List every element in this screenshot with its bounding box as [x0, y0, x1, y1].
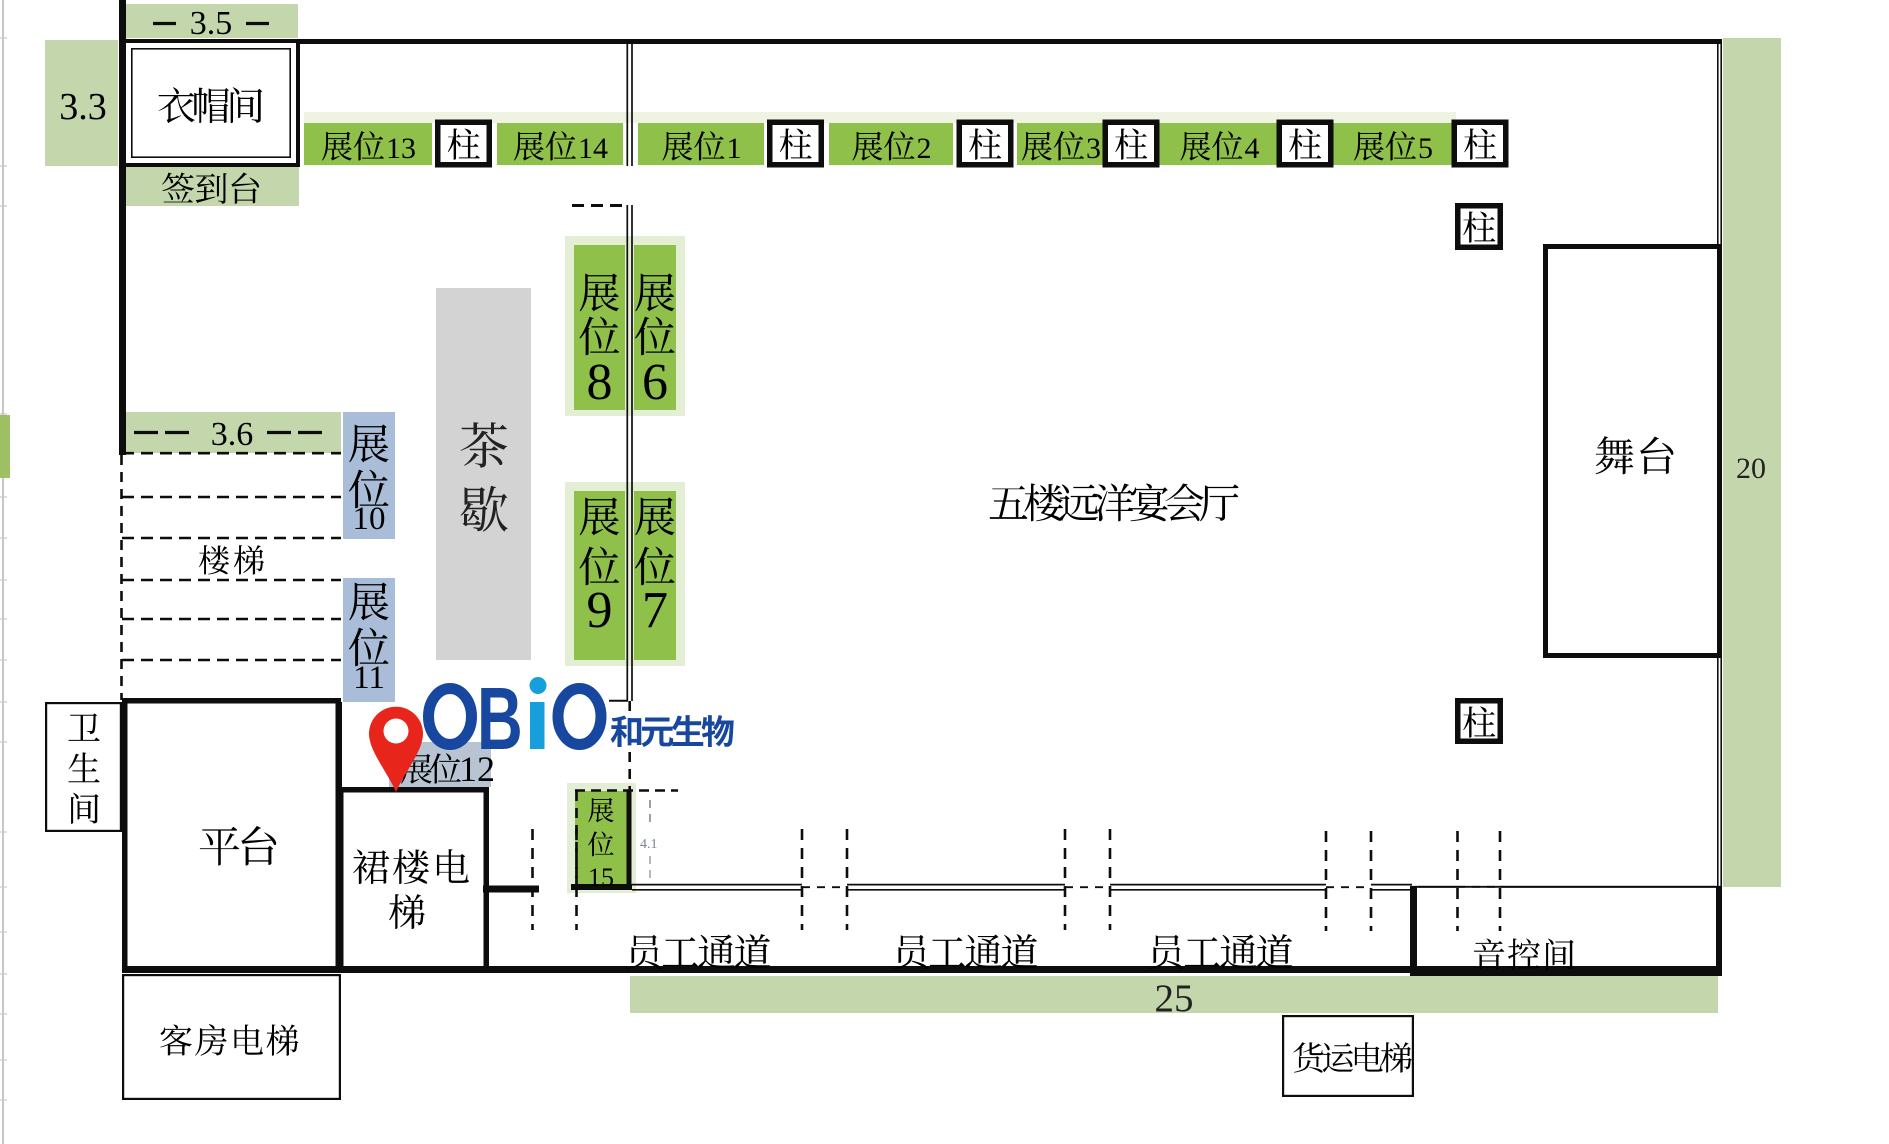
svg-text:3: 3 — [1086, 132, 1101, 165]
svg-text:8: 8 — [587, 354, 613, 411]
svg-text:6: 6 — [642, 354, 668, 411]
svg-text:14: 14 — [578, 132, 608, 165]
svg-text:3.6: 3.6 — [211, 416, 254, 453]
svg-text:25: 25 — [1155, 977, 1194, 1020]
svg-text:4: 4 — [1245, 132, 1260, 165]
svg-text:10: 10 — [353, 501, 386, 537]
svg-text:2: 2 — [917, 132, 932, 165]
svg-text:5: 5 — [1418, 132, 1433, 165]
svg-text:11: 11 — [353, 660, 385, 696]
svg-text:20: 20 — [1736, 452, 1766, 485]
svg-text:13: 13 — [386, 132, 416, 165]
svg-text:B: B — [477, 671, 523, 769]
svg-text:4.1: 4.1 — [640, 837, 658, 852]
svg-text:1: 1 — [727, 132, 742, 165]
svg-text:3.5: 3.5 — [190, 5, 233, 42]
svg-text:15: 15 — [588, 863, 614, 892]
svg-text:9: 9 — [587, 582, 613, 639]
svg-text:7: 7 — [642, 582, 668, 639]
svg-text:3.3: 3.3 — [59, 86, 107, 128]
